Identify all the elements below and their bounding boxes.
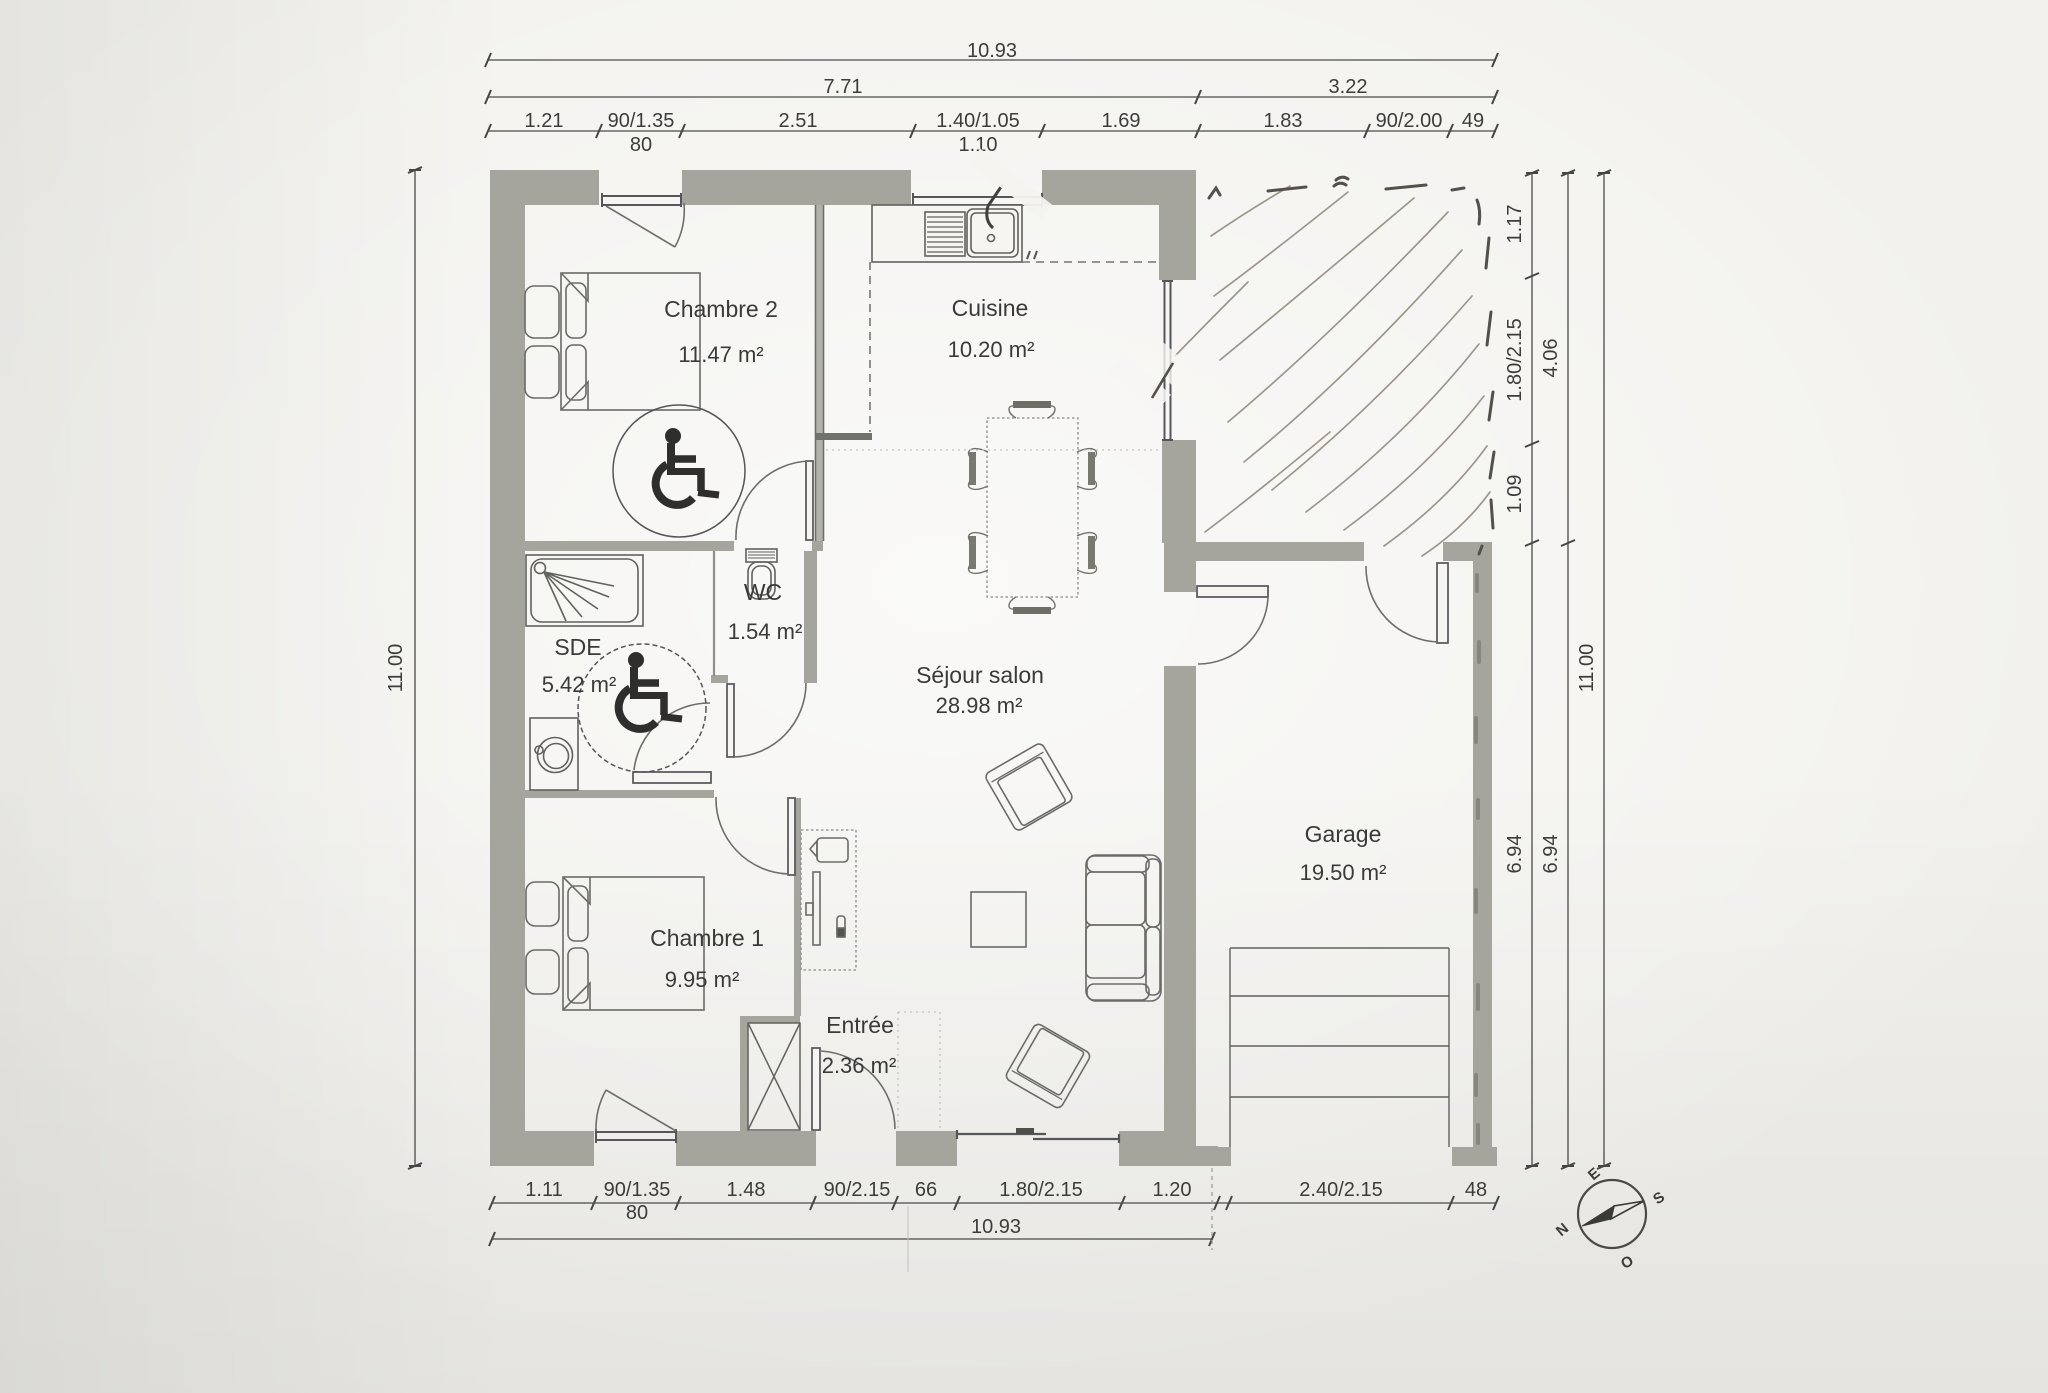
svg-text:1.80/2.15: 1.80/2.15 (999, 1179, 1082, 1201)
svg-text:SDE: SDE (554, 634, 601, 660)
svg-text:1.17: 1.17 (1504, 205, 1526, 244)
svg-text:Garage: Garage (1305, 821, 1382, 847)
svg-text:10.93: 10.93 (967, 40, 1017, 62)
svg-text:6.94: 6.94 (1504, 835, 1526, 874)
svg-text:9.95 m²: 9.95 m² (665, 967, 740, 992)
svg-text:49: 49 (1462, 110, 1484, 132)
svg-text:90/2.15: 90/2.15 (824, 1179, 891, 1201)
svg-text:10.93: 10.93 (971, 1216, 1021, 1238)
svg-text:19.50 m²: 19.50 m² (1300, 860, 1387, 885)
svg-text:10.20 m²: 10.20 m² (948, 337, 1035, 362)
svg-text:Entrée: Entrée (826, 1012, 894, 1038)
svg-text:11.47 m²: 11.47 m² (678, 342, 763, 367)
svg-text:1.09: 1.09 (1504, 475, 1526, 514)
svg-text:90/1.35: 90/1.35 (604, 1179, 671, 1201)
svg-text:80: 80 (630, 134, 652, 156)
svg-text:2.36 m²: 2.36 m² (822, 1053, 897, 1078)
svg-text:Chambre 2: Chambre 2 (664, 296, 778, 322)
svg-text:11.00: 11.00 (385, 644, 407, 693)
svg-text:90/2.00: 90/2.00 (1376, 110, 1443, 132)
svg-text:3.22: 3.22 (1329, 76, 1368, 98)
svg-text:Cuisine: Cuisine (952, 295, 1029, 321)
svg-text:1.83: 1.83 (1264, 110, 1303, 132)
svg-text:7.71: 7.71 (824, 76, 863, 98)
svg-text:28.98 m²: 28.98 m² (936, 693, 1023, 718)
svg-text:11.00: 11.00 (1576, 644, 1598, 693)
svg-text:66: 66 (915, 1179, 937, 1201)
svg-text:6.94: 6.94 (1540, 835, 1562, 874)
svg-text:Séjour salon: Séjour salon (916, 662, 1044, 688)
svg-text:1.21: 1.21 (525, 110, 564, 132)
svg-text:80: 80 (626, 1202, 648, 1224)
svg-text:WC: WC (744, 579, 782, 605)
svg-text:1.11: 1.11 (525, 1179, 562, 1201)
svg-text:1.69: 1.69 (1102, 110, 1141, 132)
svg-text:1.80/2.15: 1.80/2.15 (1504, 318, 1526, 401)
svg-text:Chambre 1: Chambre 1 (650, 925, 764, 951)
svg-text:2.51: 2.51 (779, 110, 818, 132)
svg-text:4.06: 4.06 (1540, 339, 1562, 378)
svg-text:48: 48 (1465, 1179, 1487, 1201)
svg-text:90/1.35: 90/1.35 (608, 110, 675, 132)
svg-text:1.54 m²: 1.54 m² (728, 619, 803, 644)
svg-text:1.48: 1.48 (727, 1179, 766, 1201)
svg-text:1.20: 1.20 (1153, 1179, 1192, 1201)
svg-text:1.40/1.05: 1.40/1.05 (936, 110, 1019, 132)
svg-text:5.42 m²: 5.42 m² (542, 672, 617, 697)
svg-text:2.40/2.15: 2.40/2.15 (1299, 1179, 1382, 1201)
